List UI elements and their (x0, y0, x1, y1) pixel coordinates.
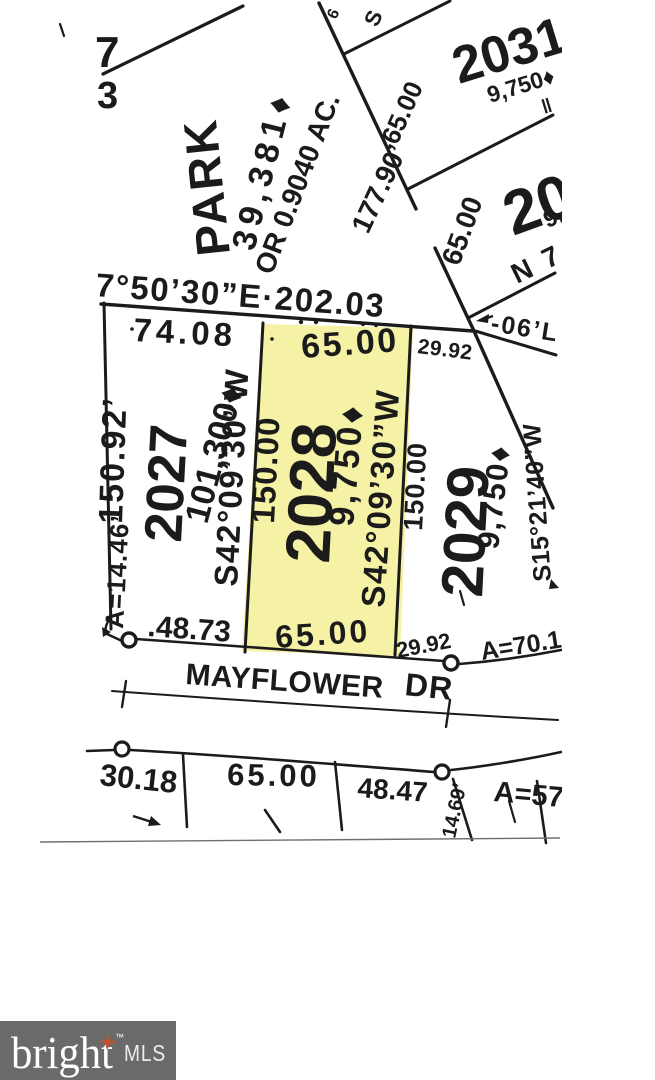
svg-text:™: ™ (115, 1032, 124, 1042)
svg-text:MLS: MLS (124, 1040, 166, 1066)
svg-text:7: 7 (95, 28, 119, 77)
svg-text:A=14.46’: A=14.46’ (99, 514, 135, 630)
svg-text:DR: DR (403, 666, 455, 707)
svg-text:3: 3 (97, 75, 118, 117)
svg-text:48.47: 48.47 (357, 772, 429, 808)
svg-text:65.00: 65.00 (300, 321, 400, 366)
svg-text:bright: bright (11, 1027, 113, 1078)
svg-text:74.08: 74.08 (133, 311, 237, 353)
svg-text:65.00: 65.00 (227, 757, 320, 794)
svg-text:150.92’: 150.92’ (92, 396, 134, 525)
svg-text:150.00: 150.00 (398, 441, 433, 531)
svg-text:A=57: A=57 (492, 776, 565, 814)
